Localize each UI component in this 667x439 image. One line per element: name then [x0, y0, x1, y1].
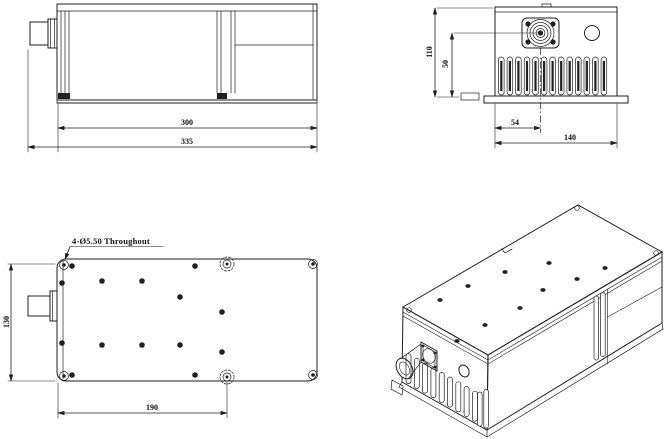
dim-body-length: 300 [181, 118, 193, 127]
side-view-body [57, 4, 317, 103]
corner-mount-holes [60, 260, 318, 381]
front-panel-hole [585, 26, 600, 41]
dim-total-depth: 130 [2, 316, 11, 328]
dim-mount-hole-spacing: 190 [146, 403, 158, 412]
heatsink-fins-front [499, 57, 607, 95]
dim-total-length: 335 [181, 137, 193, 146]
drawing-canvas: 300 335 [0, 0, 667, 439]
dim-aperture-center-height: 50 [441, 60, 450, 68]
dim-aperture-center-offset: 54 [511, 118, 519, 127]
side-view-dimensions: 300 335 [28, 50, 317, 152]
iso-faces [402, 205, 662, 430]
front-view: 110 50 54 140 [425, 4, 628, 148]
iso-top-screw-dots [407, 206, 659, 343]
lid-screw-dots [59, 263, 225, 378]
iso-front-hole [457, 363, 471, 378]
mount-hole-note: 4-Ø5.50 Throughout [72, 236, 150, 246]
side-view: 300 335 [28, 4, 317, 152]
top-view-dimensions: 130 190 [2, 264, 227, 418]
top-view: 4-Ø5.50 Throughout 130 190 [2, 236, 318, 418]
counterbored-holes [220, 257, 234, 384]
dim-total-height: 110 [425, 46, 434, 58]
side-view-connector [30, 19, 57, 48]
iso-corner-columns [478, 287, 663, 428]
top-view-body [57, 259, 317, 381]
top-view-connector [28, 291, 57, 321]
dim-total-width: 140 [564, 133, 576, 142]
left-foot [58, 93, 70, 99]
mount-hole-callout: 4-Ø5.50 Throughout [65, 236, 163, 260]
isometric-view [391, 205, 663, 437]
iso-base [391, 323, 663, 437]
technical-drawing: 300 335 [0, 0, 667, 439]
middle-foot [217, 93, 227, 99]
